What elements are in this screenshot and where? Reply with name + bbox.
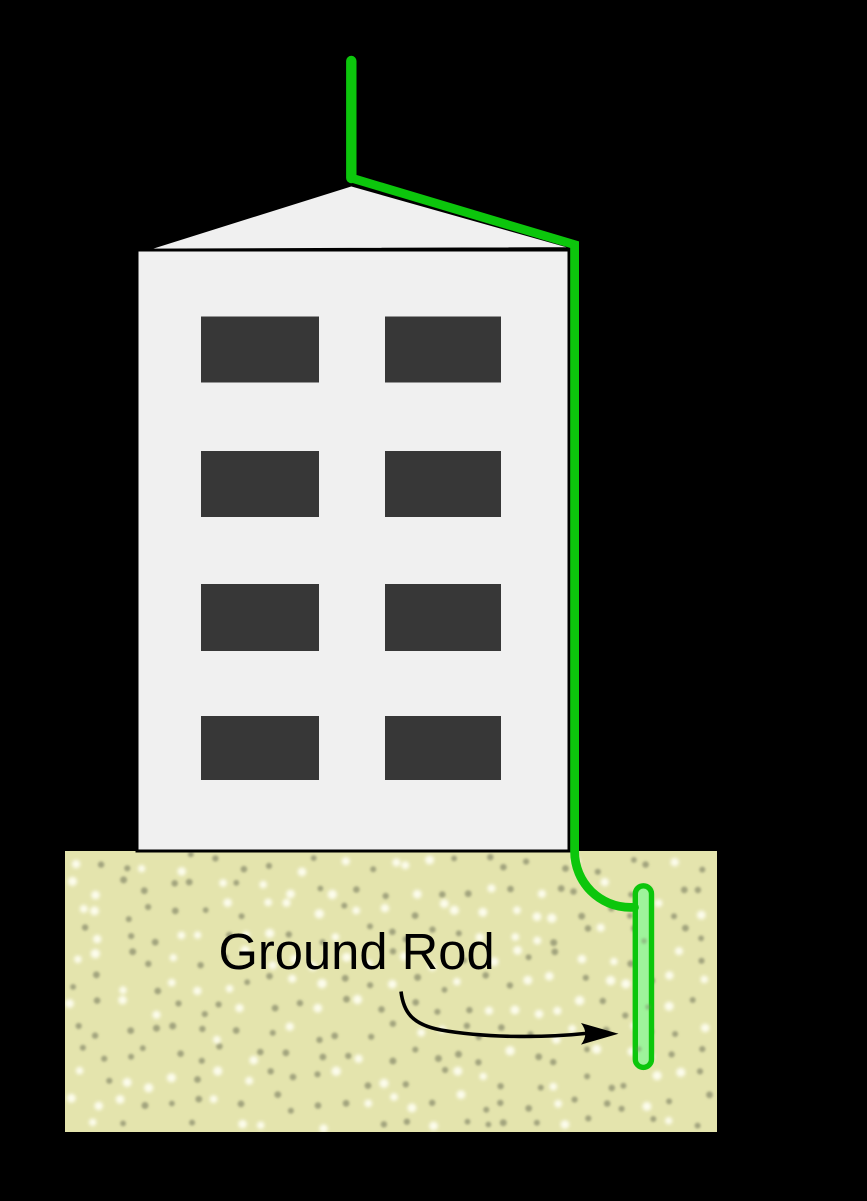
svg-text:Ground Rod: Ground Rod <box>219 923 495 980</box>
